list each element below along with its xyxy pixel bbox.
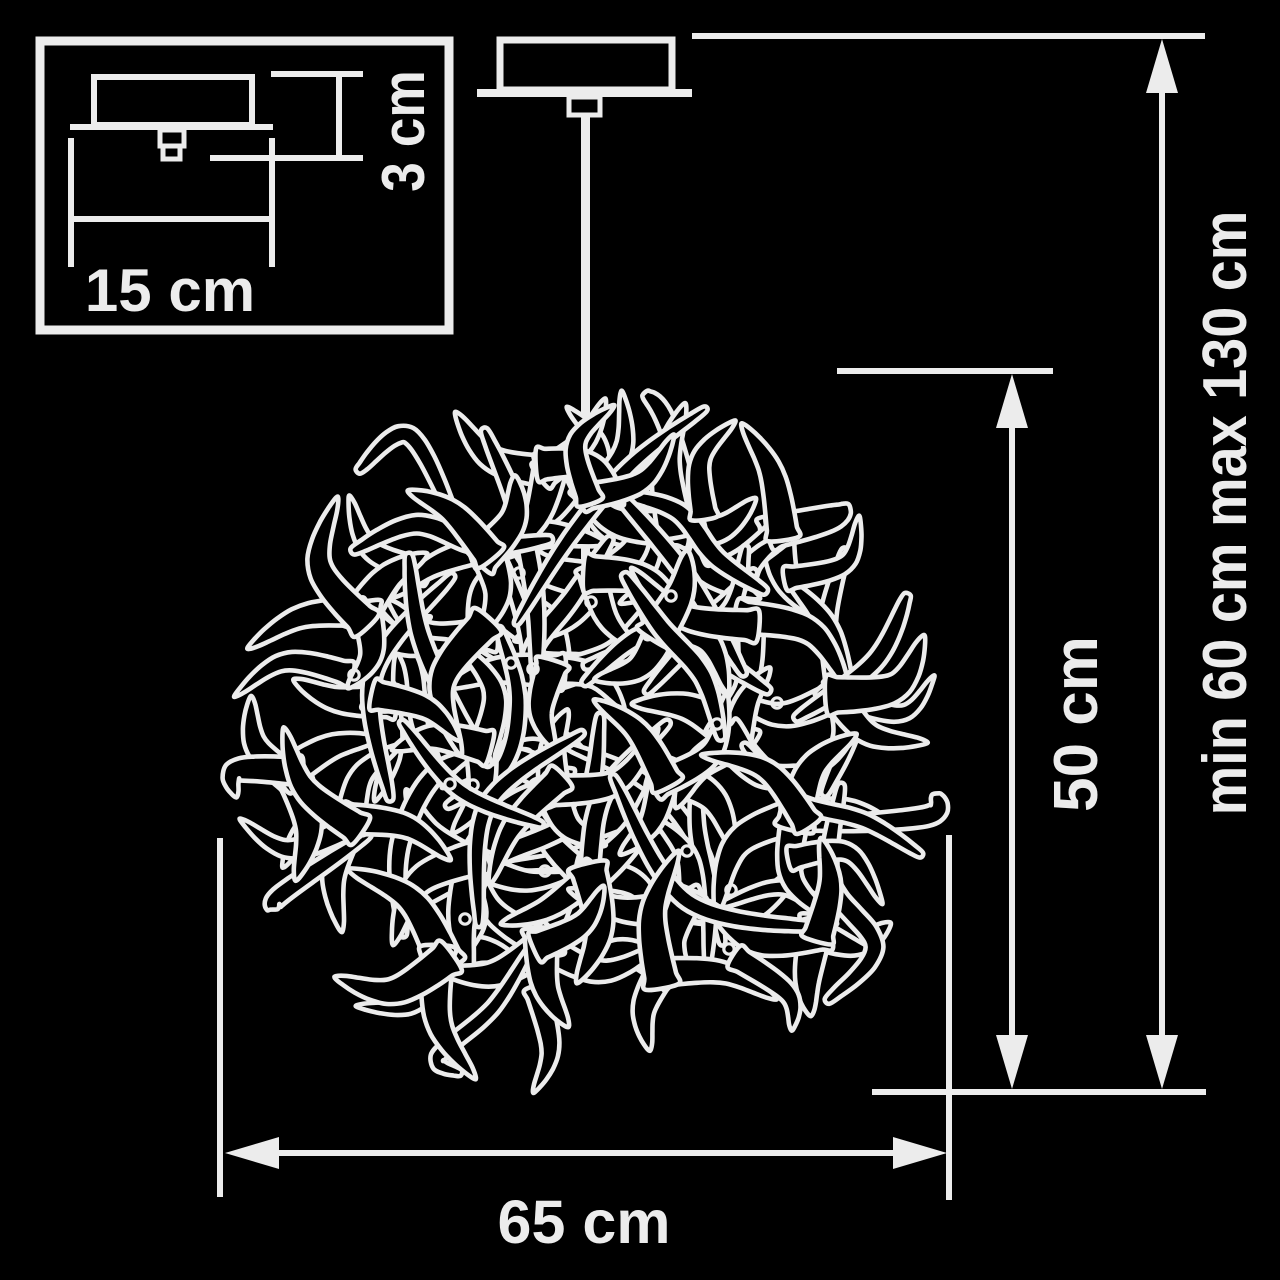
svg-text:65 cm: 65 cm — [498, 1188, 671, 1256]
svg-text:3 cm: 3 cm — [371, 70, 438, 192]
svg-text:min 60 cm max 130 cm: min 60 cm max 130 cm — [1191, 211, 1259, 816]
svg-text:15 cm: 15 cm — [85, 257, 255, 324]
svg-text:50 cm: 50 cm — [1042, 636, 1111, 812]
